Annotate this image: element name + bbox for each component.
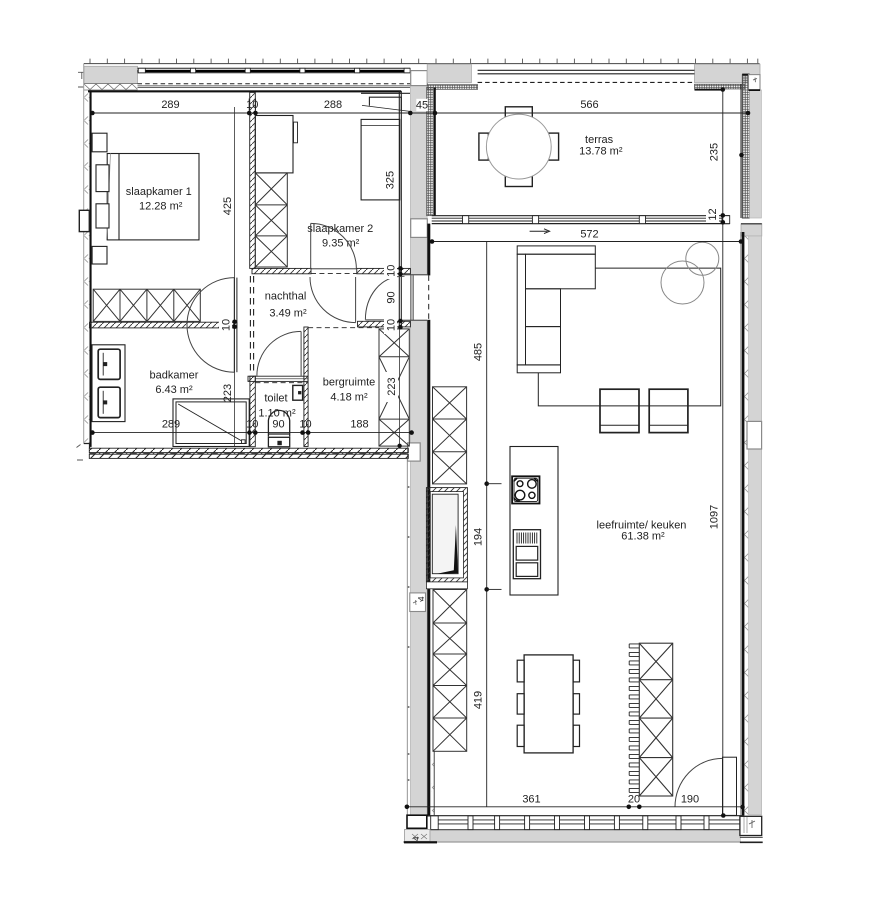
svg-text:425: 425 xyxy=(222,197,234,215)
svg-text:45: 45 xyxy=(416,100,428,112)
svg-text:12: 12 xyxy=(707,208,719,220)
svg-text:10: 10 xyxy=(299,419,311,431)
svg-text:9.35 m²: 9.35 m² xyxy=(322,237,360,249)
svg-text:61.38 m²: 61.38 m² xyxy=(621,531,665,543)
svg-text:4.18 m²: 4.18 m² xyxy=(330,391,368,403)
svg-text:slaapkamer 1: slaapkamer 1 xyxy=(126,186,192,198)
svg-text:289: 289 xyxy=(162,419,180,431)
svg-text:289: 289 xyxy=(161,99,179,111)
svg-text:4: 4 xyxy=(417,596,426,601)
svg-text:288: 288 xyxy=(324,99,342,111)
svg-text:90: 90 xyxy=(386,291,398,303)
svg-text:nachthal: nachthal xyxy=(265,291,307,303)
svg-text:1097: 1097 xyxy=(709,505,721,529)
svg-text:90: 90 xyxy=(272,419,284,431)
svg-text:3.49 m²: 3.49 m² xyxy=(269,307,307,319)
svg-text:slaapkamer 2: slaapkamer 2 xyxy=(307,223,373,235)
svg-text:235: 235 xyxy=(709,143,721,161)
svg-text:terras: terras xyxy=(585,134,614,146)
svg-text:13.78 m²: 13.78 m² xyxy=(579,146,623,158)
svg-text:361: 361 xyxy=(522,793,540,805)
svg-text:toilet: toilet xyxy=(264,393,287,405)
svg-text:419: 419 xyxy=(473,691,485,709)
svg-text:566: 566 xyxy=(580,99,598,111)
svg-text:10: 10 xyxy=(386,319,398,331)
svg-text:194: 194 xyxy=(473,528,485,546)
svg-text:223: 223 xyxy=(222,384,234,402)
svg-text:bergruimte: bergruimte xyxy=(323,377,376,389)
svg-text:10: 10 xyxy=(246,419,258,431)
svg-text:10: 10 xyxy=(246,99,258,111)
svg-text:325: 325 xyxy=(385,171,397,189)
svg-text:485: 485 xyxy=(473,343,485,361)
svg-text:4: 4 xyxy=(412,836,421,841)
svg-text:20: 20 xyxy=(628,793,640,805)
svg-text:188: 188 xyxy=(350,419,368,431)
svg-text:badkamer: badkamer xyxy=(150,370,199,382)
svg-text:190: 190 xyxy=(681,793,699,805)
svg-text:12.28 m²: 12.28 m² xyxy=(139,200,183,212)
svg-text:10: 10 xyxy=(221,319,233,331)
svg-text:572: 572 xyxy=(580,228,598,240)
svg-text:223: 223 xyxy=(386,377,398,395)
svg-text:10: 10 xyxy=(386,265,398,277)
svg-text:6.43 m²: 6.43 m² xyxy=(155,384,193,396)
